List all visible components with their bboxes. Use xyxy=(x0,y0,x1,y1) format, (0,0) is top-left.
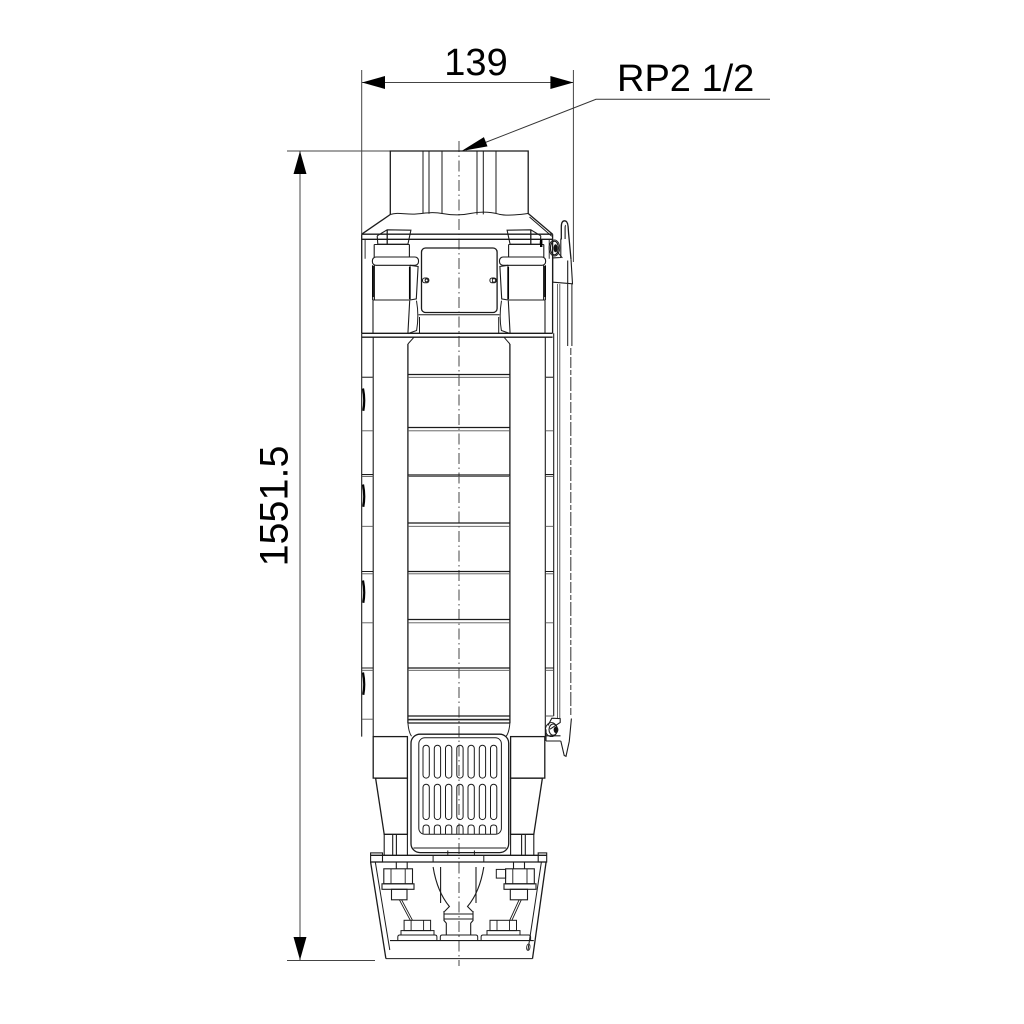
svg-text:RP2 1/2: RP2 1/2 xyxy=(617,58,754,100)
svg-text:139: 139 xyxy=(444,42,507,84)
svg-text:1551.5: 1551.5 xyxy=(253,446,297,567)
